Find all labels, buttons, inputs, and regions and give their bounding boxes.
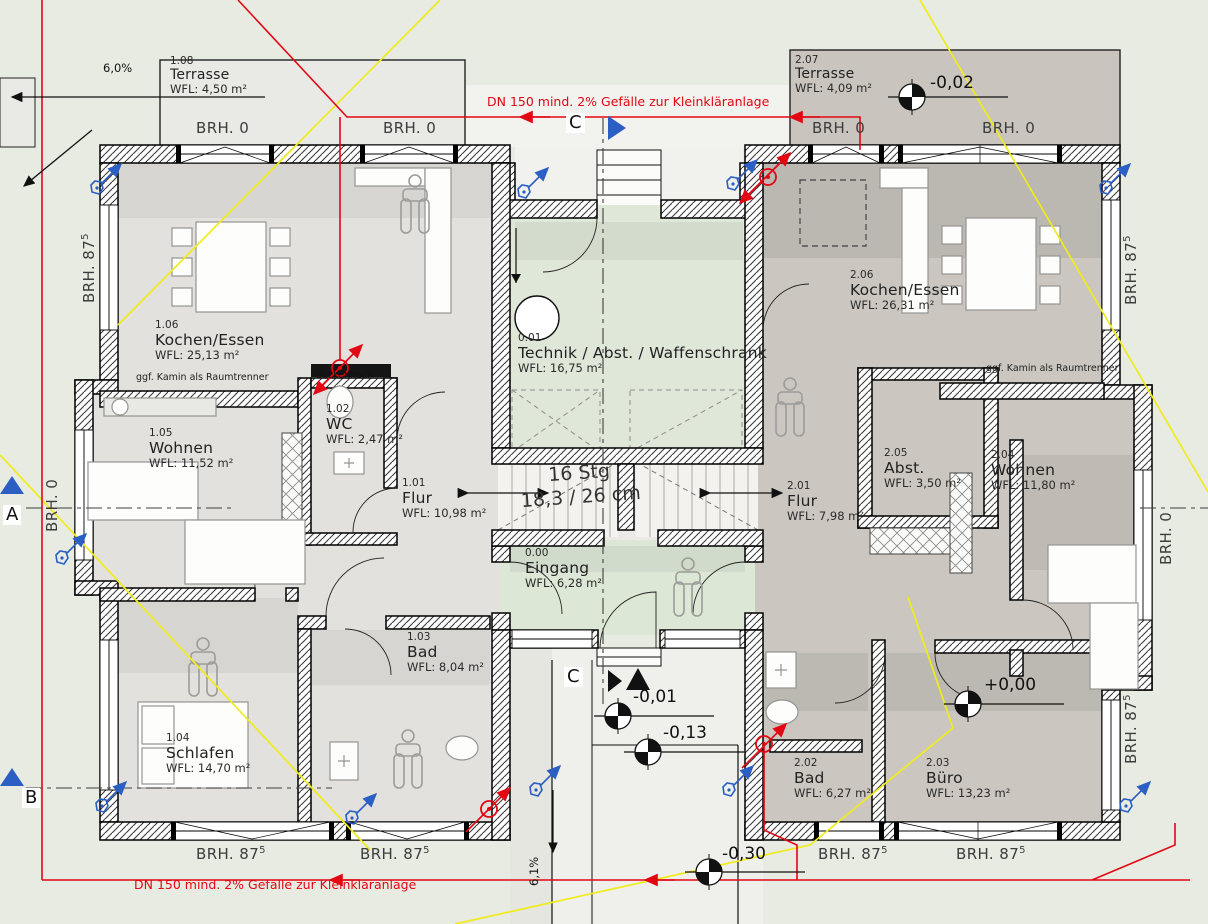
brh-label-left-top: BRH. 875 [80,233,98,303]
level-terrace-right: -0,02 [930,74,974,93]
section-marker-b: B [22,788,40,808]
brh-label-right: BRH. 0 [1158,512,1175,565]
brh-label-right-bottom: BRH. 875 [1122,694,1140,764]
note-deckenhoch: deckenhoch [316,371,373,382]
floorplan-canvas: 6,0% 1.08 Terrasse WFL: 4,50 m² 2.07 Ter… [0,0,1208,924]
room-schlafen-1-04: 1.04 Schlafen WFL: 14,70 m² [166,733,250,775]
brh-label: BRH. 875 [956,845,1026,863]
room-wc-1-02: 1.02 WC WFL: 2,47 m² [326,404,403,446]
room-flur-1-01: 1.01 Flur WFL: 10,98 m² [402,478,486,520]
sewage-note-top: DN 150 mind. 2% Gefälle zur Kleinkläranl… [487,95,769,109]
room-flur-2-01: 2.01 Flur WFL: 7,98 m² [787,481,864,523]
room-wohnen-1-05: 1.05 Wohnen WFL: 11,52 m² [149,428,233,470]
brh-label-left: BRH. 0 [44,479,61,532]
level-buero: +0,00 [984,676,1036,695]
brh-label: BRH. 875 [360,845,430,863]
room-buero-2-03: 2.03 Büro WFL: 13,23 m² [926,758,1010,800]
brh-label: BRH. 0 [982,120,1035,137]
section-marker-c-bottom: C [564,667,583,687]
room-terrasse-1-08: 1.08 Terrasse WFL: 4,50 m² [170,56,247,96]
room-kochen-essen-1-06: 1.06 Kochen/Essen WFL: 25,13 m² [155,320,265,362]
room-bad-1-03: 1.03 Bad WFL: 8,04 m² [407,632,484,674]
note-kamin-left: ggf. Kamin als Raumtrenner [136,373,269,384]
brh-label: BRH. 875 [196,845,266,863]
level-entry-upper: -0,01 [633,688,677,707]
brh-label: BRH. 0 [383,120,436,137]
brh-label: BRH. 0 [196,120,249,137]
brh-label: BRH. 875 [818,845,888,863]
room-kochen-essen-2-06: 2.06 Kochen/Essen WFL: 26,31 m² [850,270,960,312]
room-eingang-0-00: 0.00 Eingang WFL: 6,28 m² [525,548,602,590]
level-entry-lower: -0,13 [663,724,707,743]
slope-label-driveway: 6,1% [528,857,541,886]
note-kamin-right: ggf. Kamin als Raumtrenner [986,364,1119,375]
room-terrasse-2-07: 2.07 Terrasse WFL: 4,09 m² [795,55,872,95]
brh-label: BRH. 0 [812,120,865,137]
sewage-note-bottom: DN 150 mind. 2% Gefälle zur Kleinkläranl… [134,878,416,892]
section-marker-a: A [3,505,21,525]
room-technik-0-01: 0.01 Technik / Abst. / Waffenschrank WFL… [518,333,767,375]
room-wohnen-2-04: 2.04 Wohnen WFL: 11,80 m² [991,450,1075,492]
room-abst-2-05: 2.05 Abst. WFL: 3,50 m² [884,448,961,490]
section-marker-c-top: C [566,113,585,133]
level-driveway: -0,30 [722,845,766,864]
brh-label-right-top: BRH. 875 [1122,235,1140,305]
slope-label-top: 6,0% [103,62,132,75]
room-bad-2-02: 2.02 Bad WFL: 6,27 m² [794,758,871,800]
